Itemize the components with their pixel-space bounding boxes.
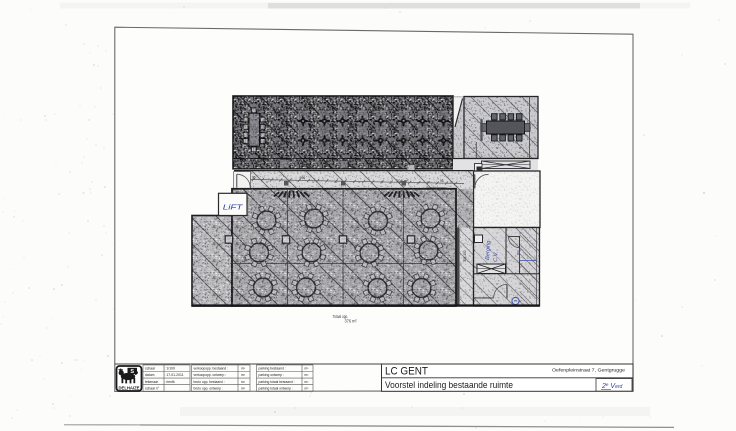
svg-text:96: 96 xyxy=(252,176,256,180)
svg-text:305 150: 305 150 xyxy=(463,250,467,262)
svg-text:96: 96 xyxy=(440,179,444,183)
svg-text:parking bestaand :: parking bestaand : xyxy=(259,367,286,371)
svg-text:Oefenpleinstraat 7, Gentgrugge: Oefenpleinstraat 7, Gentgrugge xyxy=(552,368,626,373)
svg-text:: rienfk: : rienfk xyxy=(165,380,175,384)
svg-text:LC GENT: LC GENT xyxy=(385,366,428,378)
svg-text:schaal n°: schaal n° xyxy=(145,386,160,390)
svg-text:: 17-01-2011: : 17-01-2011 xyxy=(165,373,184,377)
svg-text::: : xyxy=(165,386,166,390)
svg-text:bruto opp. bestaand :: bruto opp. bestaand : xyxy=(194,380,225,384)
svg-text:996: 996 xyxy=(300,176,306,180)
svg-text:2eVerd: 2eVerd xyxy=(601,382,623,390)
svg-text:DELHAIZE: DELHAIZE xyxy=(119,386,140,391)
svg-text:C.V.: C.V. xyxy=(493,251,500,262)
svg-text:Voorstel indeling bestaande ru: Voorstel indeling bestaande ruimte xyxy=(385,380,513,391)
svg-text:bruto opp. ontwerp :: bruto opp. ontwerp : xyxy=(194,386,223,390)
svg-text:schaal: schaal xyxy=(145,367,155,371)
svg-text:verkoopopp. ontwerp :: verkoopopp. ontwerp : xyxy=(194,373,227,377)
svg-text:parking totaal ontwerp :: parking totaal ontwerp : xyxy=(259,386,293,390)
svg-text:verkoopopp. bestaand :: verkoopopp. bestaand : xyxy=(194,367,229,371)
svg-text:LiFT: LiFT xyxy=(223,203,244,212)
svg-text:tekenaar: tekenaar xyxy=(145,380,159,384)
svg-text:Berging: Berging xyxy=(485,240,492,260)
svg-text:: 1/100: : 1/100 xyxy=(165,367,175,371)
svg-text:parking totaal bestaand :: parking totaal bestaand : xyxy=(259,380,295,384)
svg-text:datum: datum xyxy=(145,373,155,377)
svg-text:parking ontwerp :: parking ontwerp : xyxy=(259,373,284,377)
svg-text:376 m²: 376 m² xyxy=(345,319,358,324)
svg-text:S: S xyxy=(130,369,134,375)
